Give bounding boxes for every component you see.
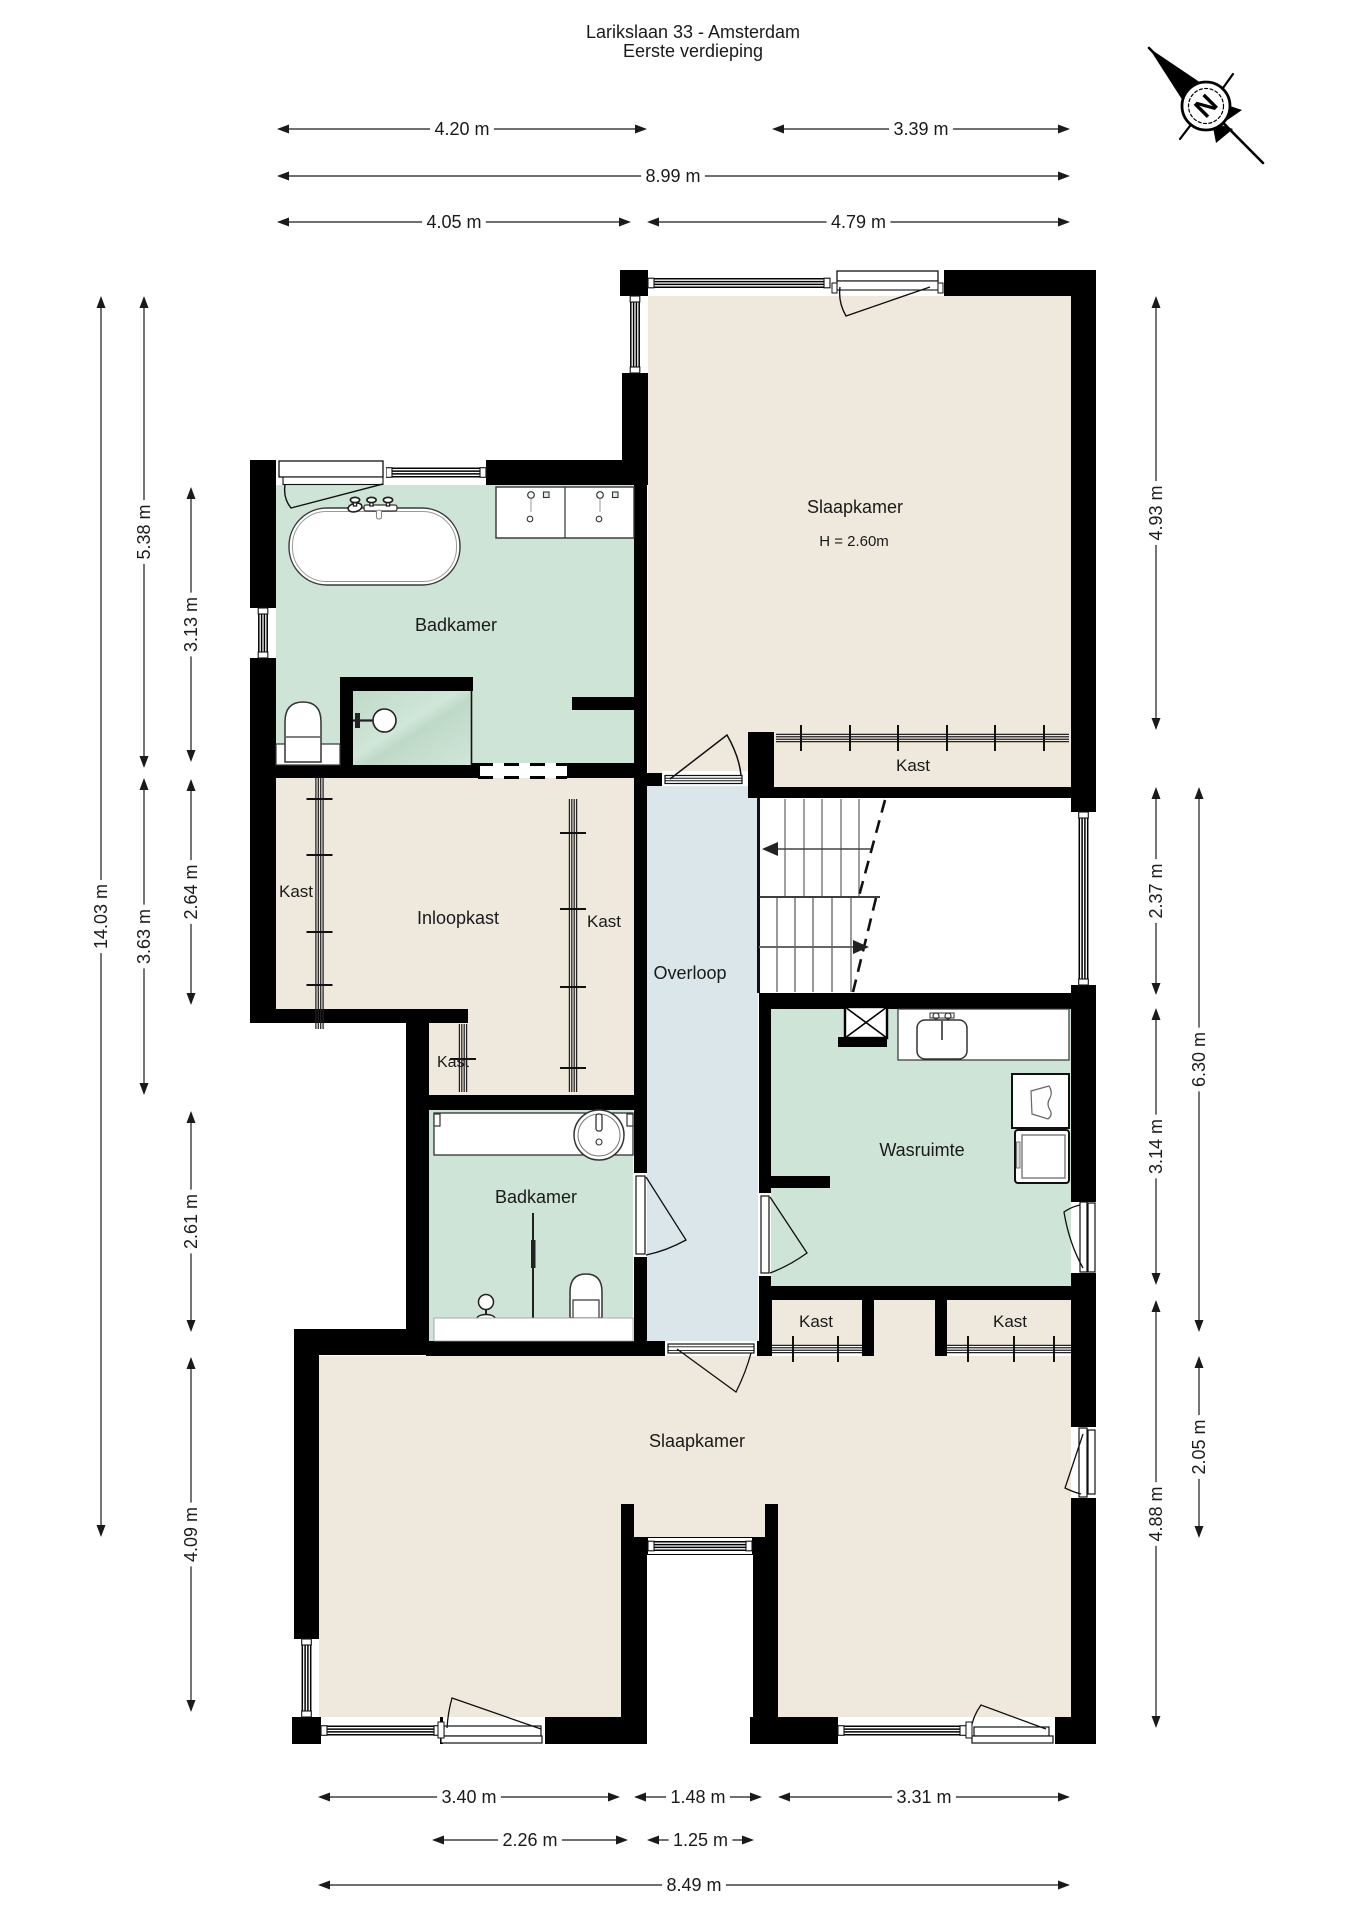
svg-text:2.26 m: 2.26 m xyxy=(502,1830,557,1850)
svg-text:Inloopkast: Inloopkast xyxy=(417,908,499,928)
svg-text:Kast: Kast xyxy=(896,756,930,775)
svg-text:3.31 m: 3.31 m xyxy=(896,1787,951,1807)
svg-text:4.05 m: 4.05 m xyxy=(426,212,481,232)
svg-text:Larikslaan 33 - Amsterdam: Larikslaan 33 - Amsterdam xyxy=(586,22,800,42)
svg-text:Kast: Kast xyxy=(993,1312,1027,1331)
svg-text:Kast: Kast xyxy=(587,912,621,931)
svg-text:1.48 m: 1.48 m xyxy=(670,1787,725,1807)
svg-text:2.05 m: 2.05 m xyxy=(1189,1419,1209,1474)
svg-text:Badkamer: Badkamer xyxy=(495,1187,577,1207)
svg-text:2.37 m: 2.37 m xyxy=(1146,863,1166,918)
svg-text:3.63 m: 3.63 m xyxy=(134,909,154,964)
svg-text:Wasruimte: Wasruimte xyxy=(879,1140,964,1160)
svg-text:H = 2.60m: H = 2.60m xyxy=(819,533,889,550)
svg-text:3.40 m: 3.40 m xyxy=(441,1787,496,1807)
svg-text:14.03 m: 14.03 m xyxy=(91,884,111,949)
svg-text:3.39 m: 3.39 m xyxy=(893,119,948,139)
svg-text:8.49 m: 8.49 m xyxy=(666,1875,721,1895)
svg-text:Kast: Kast xyxy=(799,1312,833,1331)
svg-text:1.25 m: 1.25 m xyxy=(673,1830,728,1850)
svg-text:Badkamer: Badkamer xyxy=(415,615,497,635)
svg-text:6.30 m: 6.30 m xyxy=(1189,1032,1209,1087)
svg-text:4.79 m: 4.79 m xyxy=(831,212,886,232)
svg-text:Kast: Kast xyxy=(437,1054,470,1071)
svg-text:4.93 m: 4.93 m xyxy=(1146,485,1166,540)
svg-text:3.14 m: 3.14 m xyxy=(1146,1119,1166,1174)
svg-text:4.88 m: 4.88 m xyxy=(1146,1486,1166,1541)
svg-text:Slaapkamer: Slaapkamer xyxy=(807,497,903,517)
svg-text:2.64 m: 2.64 m xyxy=(181,864,201,919)
svg-text:Kast: Kast xyxy=(279,882,313,901)
svg-text:Slaapkamer: Slaapkamer xyxy=(649,1431,745,1451)
svg-text:4.20 m: 4.20 m xyxy=(434,119,489,139)
svg-text:8.99 m: 8.99 m xyxy=(645,166,700,186)
svg-text:5.38 m: 5.38 m xyxy=(134,504,154,559)
svg-text:4.09 m: 4.09 m xyxy=(181,1507,201,1562)
svg-text:Eerste verdieping: Eerste verdieping xyxy=(623,41,763,61)
svg-text:3.13 m: 3.13 m xyxy=(181,597,201,652)
svg-text:Overloop: Overloop xyxy=(653,963,726,983)
svg-text:2.61 m: 2.61 m xyxy=(181,1194,201,1249)
